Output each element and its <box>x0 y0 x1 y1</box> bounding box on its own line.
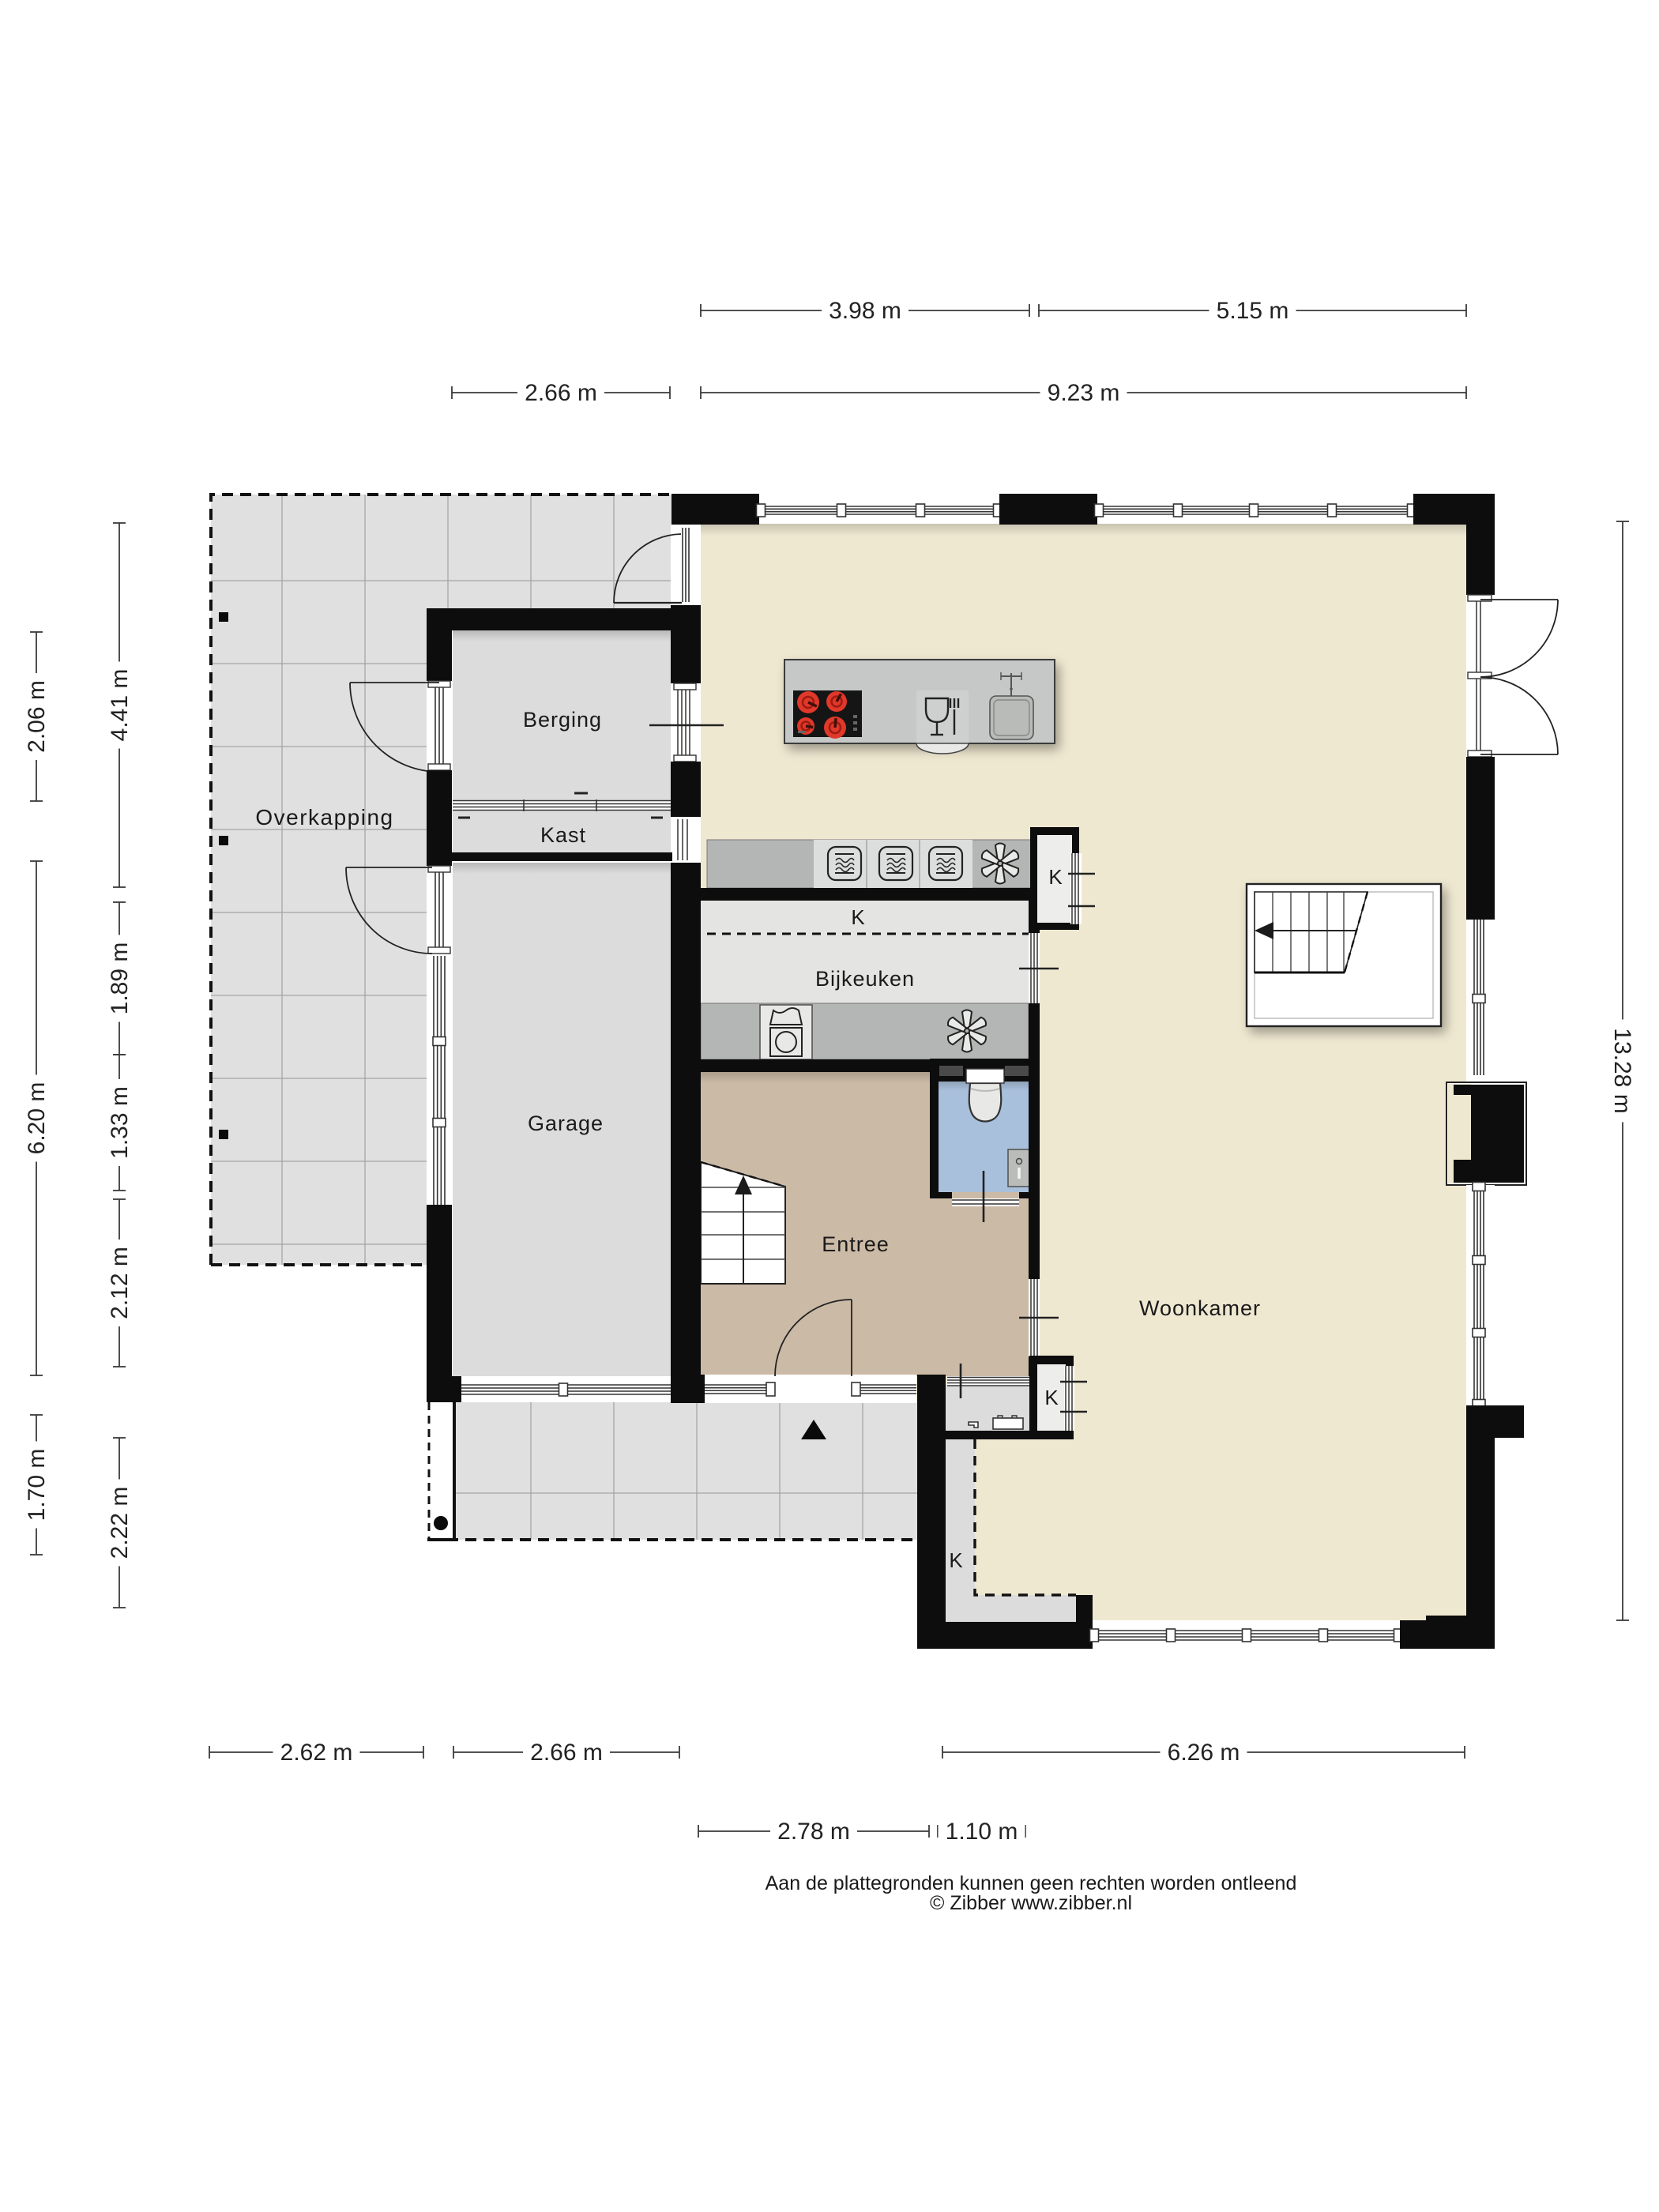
svg-text:1.33 m: 1.33 m <box>107 1086 133 1159</box>
svg-text:Garage: Garage <box>528 1112 604 1135</box>
svg-text:1.89 m: 1.89 m <box>107 942 133 1015</box>
svg-text:2.22 m: 2.22 m <box>107 1487 133 1559</box>
svg-text:K: K <box>949 1548 963 1572</box>
svg-text:© Zibber www.zibber.nl: © Zibber www.zibber.nl <box>930 1892 1132 1914</box>
svg-text:4.41 m: 4.41 m <box>107 669 133 742</box>
svg-text:2.12 m: 2.12 m <box>107 1247 133 1319</box>
svg-text:1.70 m: 1.70 m <box>24 1449 50 1522</box>
svg-text:K: K <box>1048 865 1063 889</box>
svg-text:2.78 m: 2.78 m <box>777 1819 850 1845</box>
svg-text:3.98 m: 3.98 m <box>829 298 901 324</box>
svg-text:13.28 m: 13.28 m <box>1609 1028 1635 1113</box>
svg-text:Berging: Berging <box>523 708 602 732</box>
svg-text:Overkapping: Overkapping <box>255 805 393 829</box>
svg-text:9.23 m: 9.23 m <box>1048 380 1120 406</box>
svg-text:Woonkamer: Woonkamer <box>1139 1296 1261 1320</box>
svg-text:Entree: Entree <box>822 1232 890 1256</box>
svg-text:6.20 m: 6.20 m <box>24 1082 50 1155</box>
svg-text:Aan de plattegronden kunnen ge: Aan de plattegronden kunnen geen rechten… <box>766 1872 1297 1894</box>
svg-text:K: K <box>851 905 865 929</box>
svg-text:K: K <box>1044 1386 1059 1409</box>
svg-text:5.15 m: 5.15 m <box>1217 298 1289 324</box>
svg-text:Kast: Kast <box>540 823 586 847</box>
svg-text:2.06 m: 2.06 m <box>24 680 50 753</box>
svg-text:2.62 m: 2.62 m <box>280 1740 353 1766</box>
svg-text:2.66 m: 2.66 m <box>525 380 597 406</box>
svg-text:Bijkeuken: Bijkeuken <box>815 967 915 991</box>
svg-text:6.26 m: 6.26 m <box>1168 1740 1240 1766</box>
svg-text:2.66 m: 2.66 m <box>530 1740 603 1766</box>
svg-text:1.10 m: 1.10 m <box>946 1819 1018 1845</box>
